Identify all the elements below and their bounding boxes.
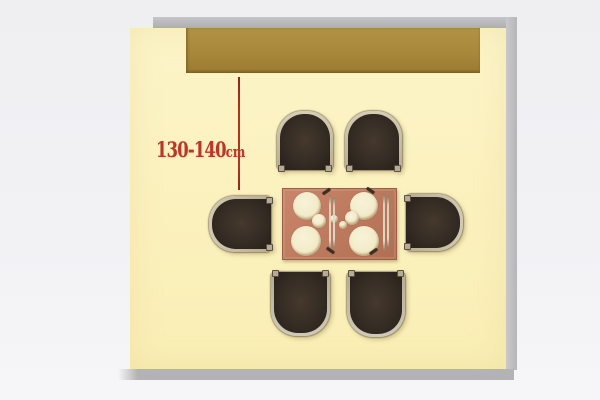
plate <box>291 226 321 256</box>
chair-foot <box>272 270 279 277</box>
chair-seat <box>212 199 271 249</box>
wall-shadow-right <box>506 17 517 370</box>
chair-foot <box>322 270 329 277</box>
cutlery-icon <box>333 197 335 248</box>
plate <box>339 221 347 229</box>
chair-foot <box>266 244 273 251</box>
dimension-line <box>238 77 240 190</box>
cutlery-icon <box>387 196 389 248</box>
chair-top-left <box>277 111 333 170</box>
chair-right <box>406 194 463 251</box>
plate <box>312 214 326 228</box>
dimension-unit: cm <box>226 143 246 161</box>
wall-shadow-bottom <box>118 369 514 380</box>
wall-shadow-top <box>153 17 517 28</box>
sideboard <box>186 28 480 73</box>
room-plan: 130-140cm <box>0 0 600 400</box>
plate <box>345 211 359 225</box>
chair-top-right <box>345 111 402 170</box>
chair-seat <box>348 114 399 170</box>
chair-foot <box>278 165 285 172</box>
chair-foot <box>266 197 273 204</box>
chair-seat <box>280 114 330 170</box>
chair-bottom-right <box>347 272 405 337</box>
cutlery-icon <box>383 194 385 251</box>
chair-seat <box>406 197 460 248</box>
chair-bottom-left <box>271 272 330 336</box>
chair-foot <box>404 243 411 250</box>
chair-foot <box>404 195 411 202</box>
chair-foot <box>394 165 401 172</box>
chair-foot <box>325 165 332 172</box>
chair-foot <box>397 270 404 277</box>
chair-seat <box>274 272 327 333</box>
chair-left <box>209 196 271 252</box>
chair-foot <box>346 165 353 172</box>
chair-foot <box>348 270 355 277</box>
cutlery-icon <box>329 195 331 250</box>
chair-seat <box>350 272 402 334</box>
dimension-label: 130-140cm <box>156 139 245 160</box>
dimension-value: 130-140 <box>156 137 226 162</box>
